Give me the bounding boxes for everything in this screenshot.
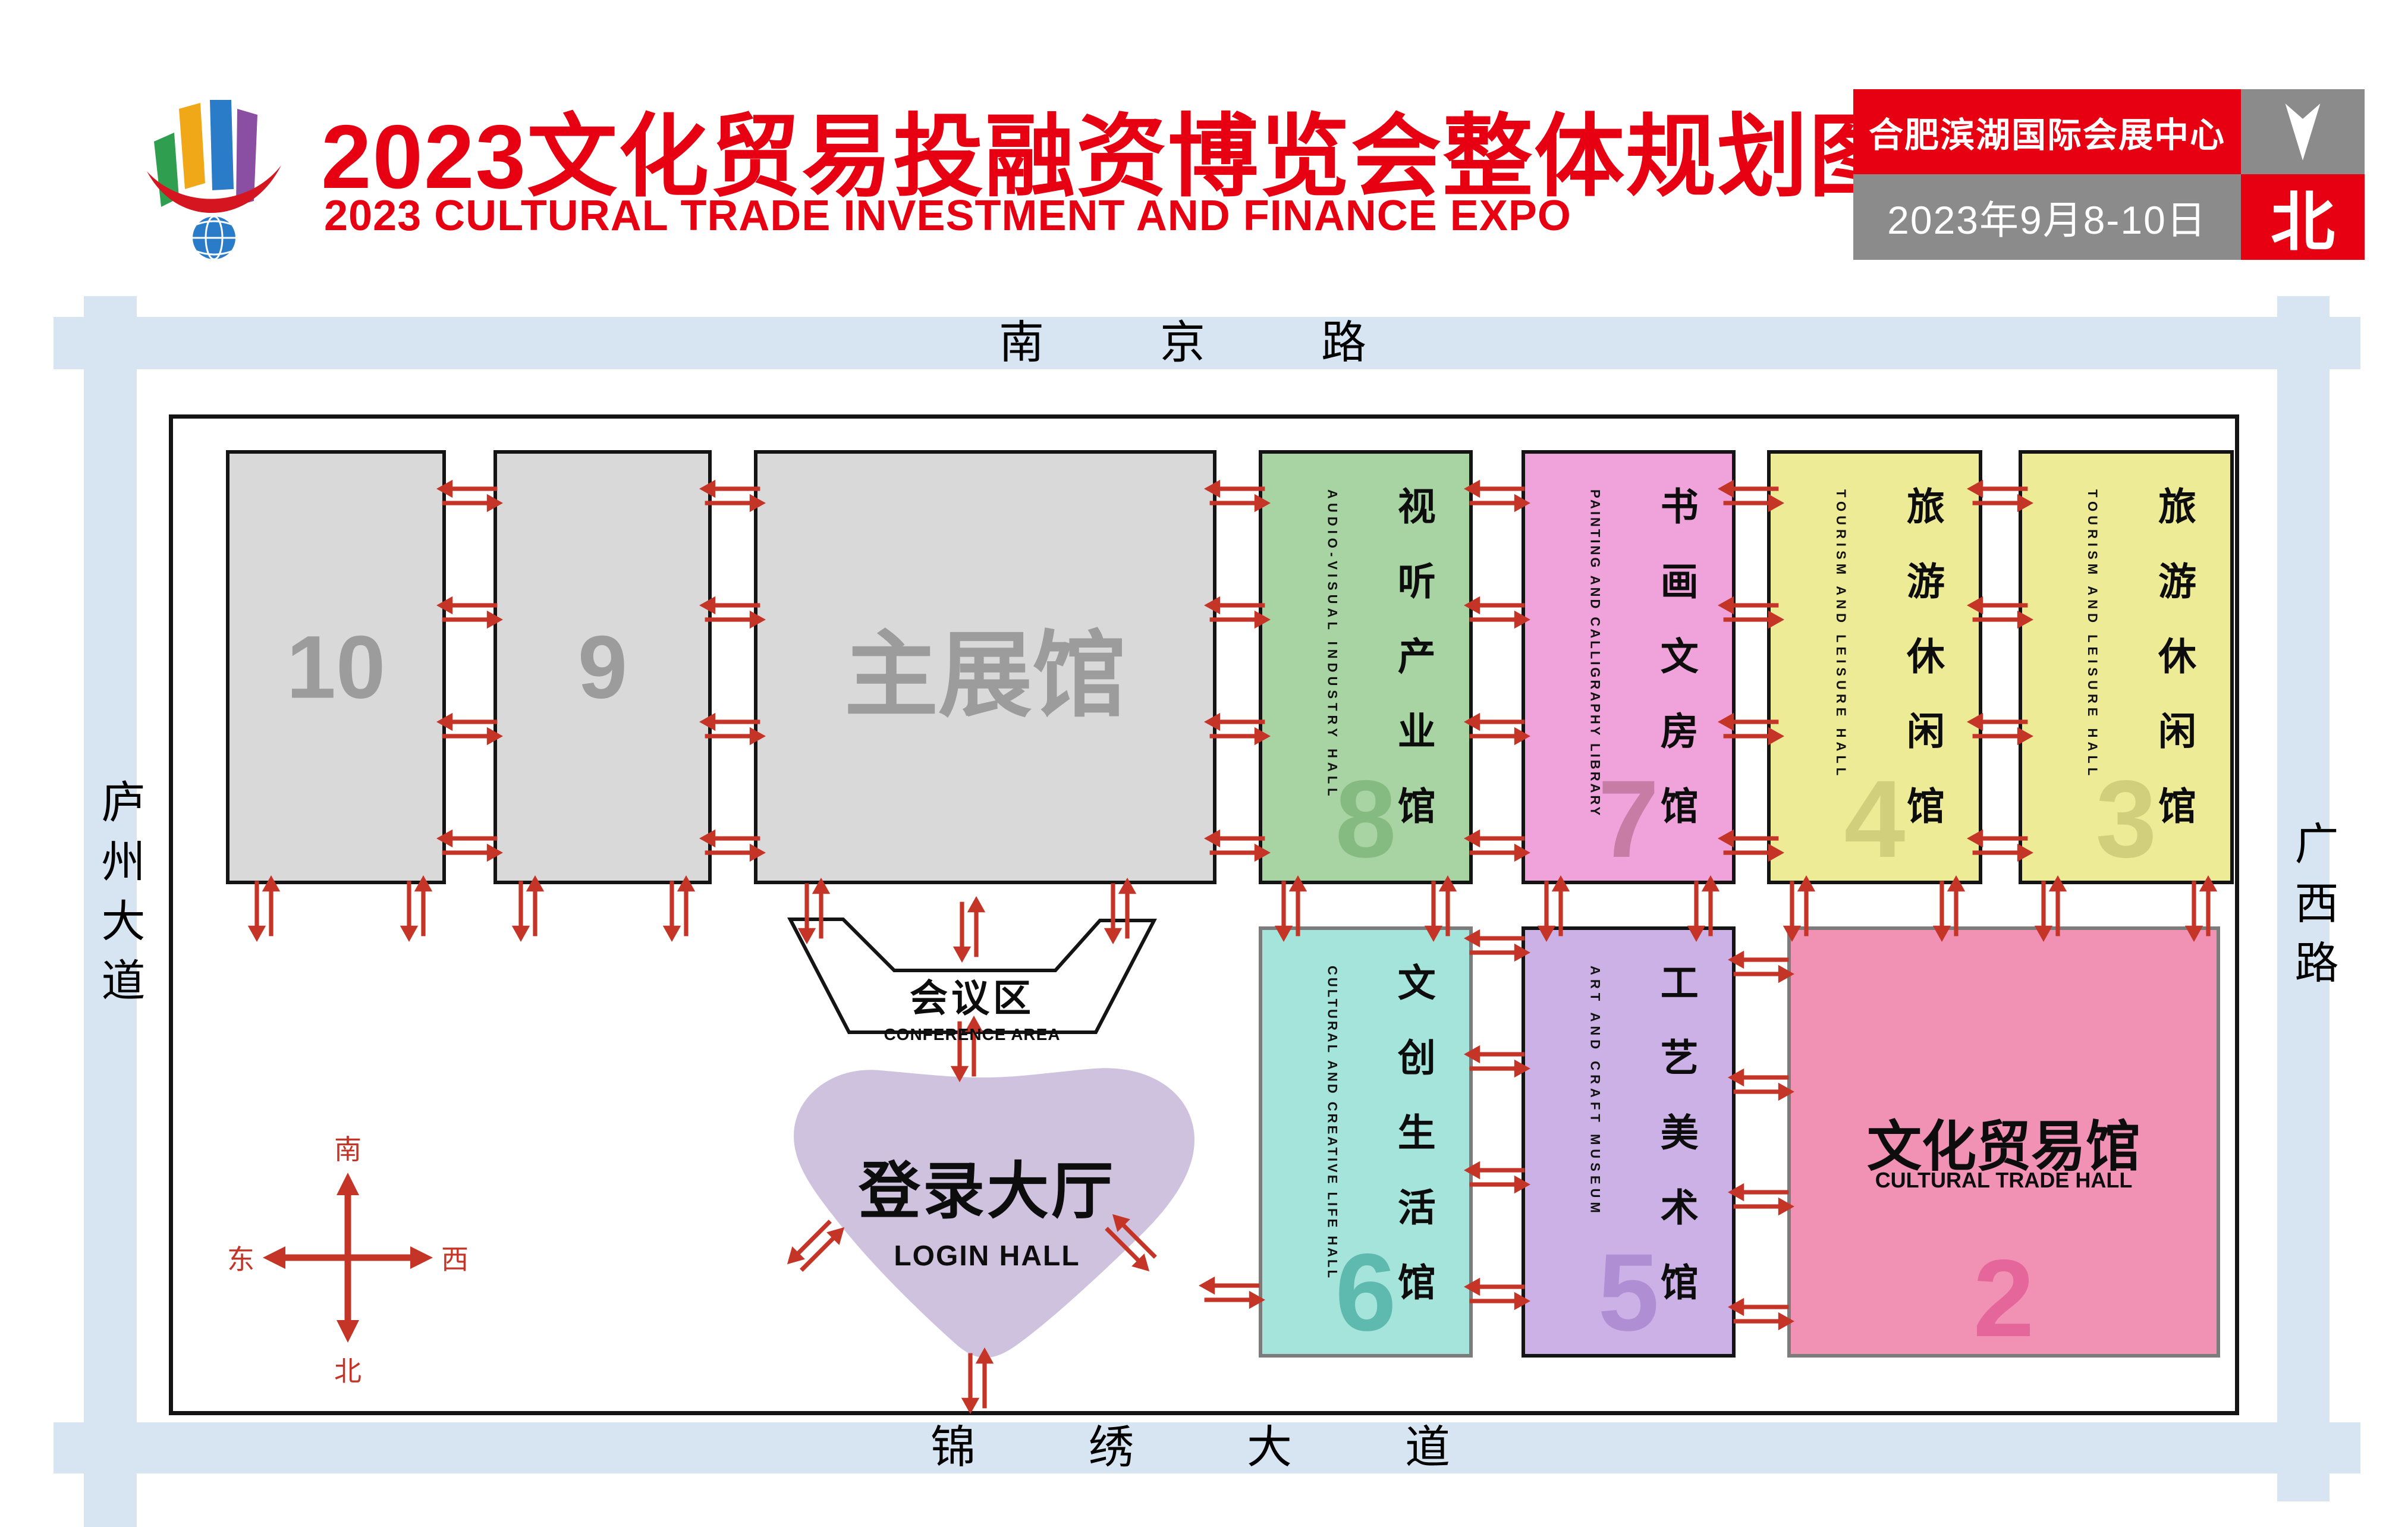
- hall-5: 工艺美术馆 ART AND CRAFT MUSEUM 5: [1521, 926, 1736, 1358]
- compass-west-label: 西: [441, 1238, 469, 1277]
- expo-logo-icon: [146, 82, 282, 260]
- hall-8-name-en: AUDIO-VISUAL INDUSTRY HALL: [1324, 489, 1340, 800]
- north-label: 北: [2241, 174, 2365, 260]
- road-label-luzhou: 庐州大道: [88, 779, 152, 1017]
- venue-name: 合肥滨湖国际会展中心: [1853, 89, 2241, 174]
- road-label-jinxiu: 锦绣大道: [930, 1422, 1563, 1473]
- compass-north-label: 北: [334, 1350, 361, 1389]
- hall-3: 旅游休闲馆 TOURISM AND LEISURE HALL 3: [2019, 450, 2234, 884]
- hall-2-number: 2: [1791, 1244, 2217, 1354]
- hall-3-name-en: TOURISM AND LEISURE HALL: [2085, 489, 2100, 780]
- north-arrow-icon: [2241, 89, 2365, 174]
- hall-main-name: 主展馆: [757, 599, 1213, 736]
- hall-3-number: 3: [2022, 765, 2230, 875]
- login-hall-label: 登录大厅 LOGIN HALL: [856, 1140, 1118, 1272]
- hall-7: 书画文房馆 PAINTING AND CALLIGRAPHY LIBRARY 7: [1521, 450, 1736, 884]
- hall-10: 10: [226, 450, 446, 884]
- road-label-nanjing: 南京路: [999, 317, 1482, 369]
- hall-main: 主展馆: [754, 450, 1216, 884]
- hall-6-number: 6: [1262, 1238, 1469, 1348]
- conference-area-label: 会议区 CONFERENCE AREA: [853, 968, 1091, 1044]
- conference-name-en: CONFERENCE AREA: [853, 1025, 1091, 1044]
- hall-9: 9: [493, 450, 712, 884]
- hall-4: 旅游休闲馆 TOURISM AND LEISURE HALL 4: [1767, 450, 1982, 884]
- hall-4-number: 4: [1771, 765, 1979, 875]
- hall-4-name-en: TOURISM AND LEISURE HALL: [1833, 489, 1849, 780]
- hall-6: 文创生活馆 CULTURAL AND CREATIVE LIFE HALL 6: [1259, 926, 1473, 1358]
- hall-10-number: 10: [230, 616, 442, 719]
- hall-5-number: 5: [1525, 1238, 1732, 1348]
- compass-east-label: 东: [227, 1238, 254, 1277]
- road-label-guangxi: 广西路: [2281, 821, 2345, 999]
- hall-5-name-en: ART AND CRAFT MUSEUM: [1587, 966, 1602, 1217]
- hall-2: 文化贸易馆 CULTURAL TRADE HALL 2: [1787, 926, 2220, 1358]
- venue-badge: 合肥滨湖国际会展中心 2023年9月8-10日 北: [1853, 89, 2365, 260]
- login-hall-name: 登录大厅: [856, 1140, 1118, 1230]
- login-hall-name-en: LOGIN HALL: [856, 1240, 1118, 1272]
- hall-8-number: 8: [1262, 765, 1469, 875]
- hall-2-name-en: CULTURAL TRADE HALL: [1791, 1168, 2217, 1193]
- hall-8: 视听产业馆 AUDIO-VISUAL INDUSTRY HALL 8: [1259, 450, 1473, 884]
- conference-name: 会议区: [853, 968, 1091, 1023]
- event-dates: 2023年9月8-10日: [1853, 174, 2241, 260]
- hall-9-number: 9: [497, 616, 708, 719]
- page-subtitle: 2023 CULTURAL TRADE INVESTMENT AND FINAN…: [324, 191, 1571, 240]
- hall-7-number: 7: [1525, 765, 1732, 875]
- expo-floor-plan: 2023文化贸易投融资博览会整体规划图 2023 CULTURAL TRADE …: [0, 0, 2408, 1527]
- compass-south-label: 南: [334, 1128, 361, 1167]
